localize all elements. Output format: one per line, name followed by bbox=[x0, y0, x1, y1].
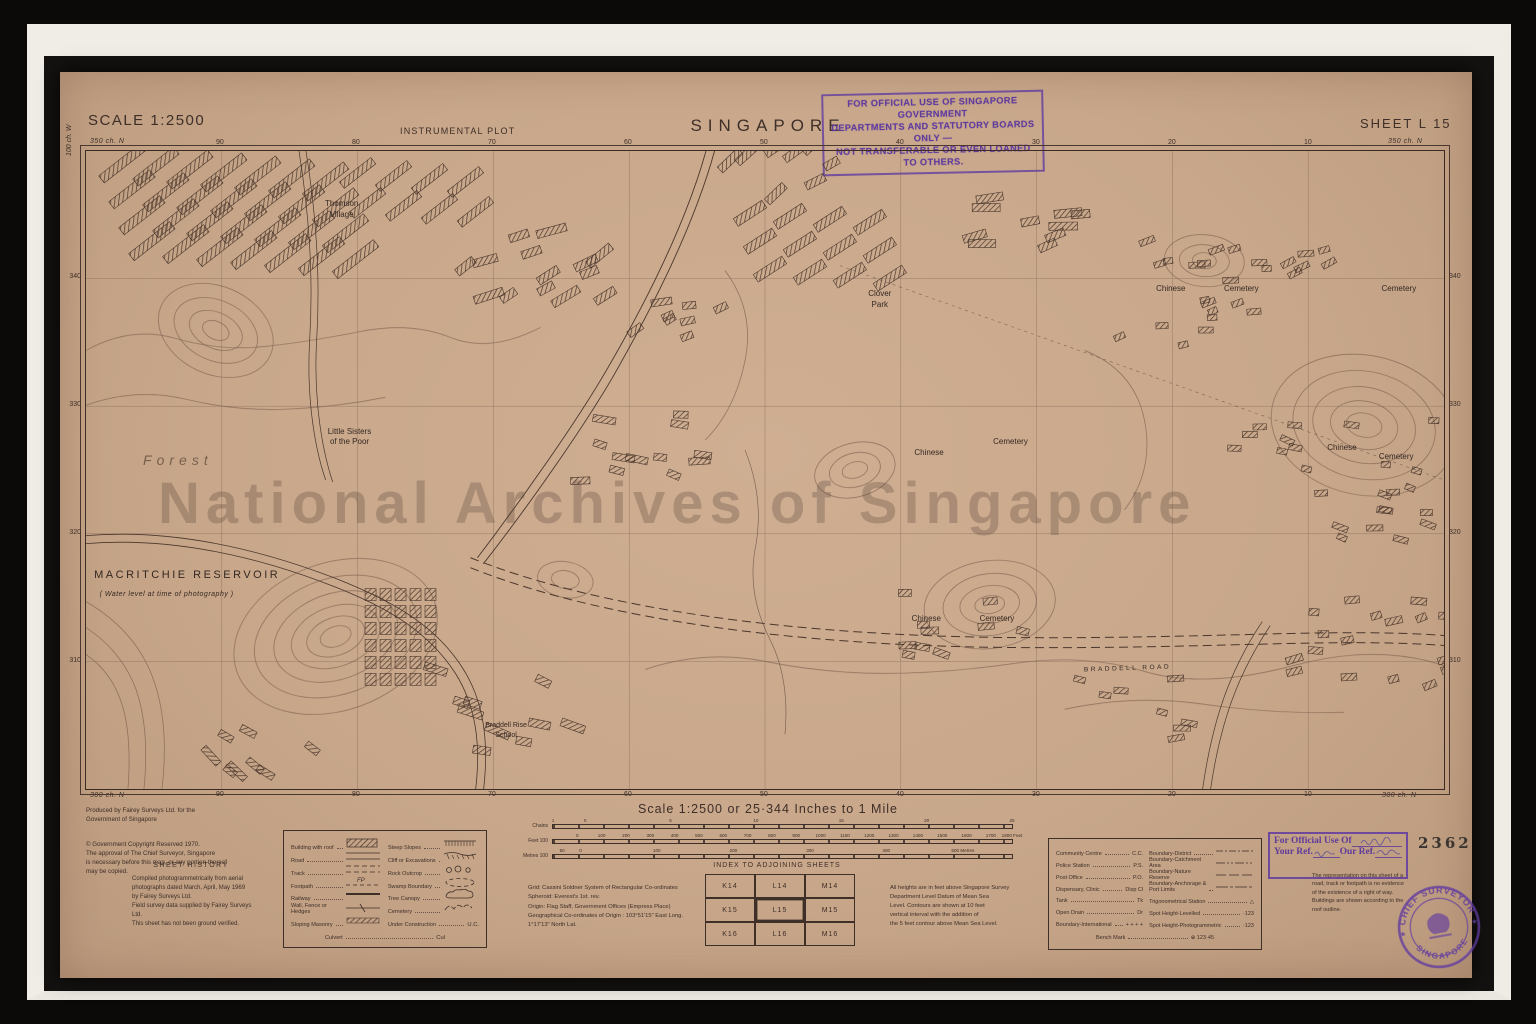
leader-dots bbox=[1225, 926, 1240, 927]
scale-label: SCALE 1:2500 bbox=[88, 112, 205, 129]
adjoining-sheet-cell: L16 bbox=[755, 922, 806, 947]
legend-row: Wall, Fence or Hedges bbox=[291, 902, 382, 915]
adjoining-sheets-title: INDEX TO ADJOINING SHEETS bbox=[692, 862, 862, 869]
leader-dots bbox=[424, 848, 440, 849]
legend-culvert-row: Culvert Cul bbox=[325, 929, 445, 941]
scale-bar-tick: 600 bbox=[719, 833, 727, 838]
map-label: Chinese bbox=[912, 614, 941, 625]
legend-row: Steep Slopes bbox=[388, 838, 479, 851]
legend-row: Building with roof bbox=[291, 838, 382, 851]
grid-number-right: 310 bbox=[1449, 657, 1461, 664]
legend-item-label: Sloping Masonry bbox=[291, 922, 333, 928]
symbol-legend-right: Steep SlopesCliff or ExcavationsRock Out… bbox=[388, 838, 479, 928]
scale-bar: 10510152025 bbox=[552, 824, 1013, 829]
legend-item-label: Track bbox=[291, 871, 305, 877]
legend-item-label: Footpath bbox=[291, 884, 313, 890]
scale-bar-tick: 20 bbox=[924, 818, 929, 823]
legend-row: Swamp Boundary bbox=[388, 877, 479, 890]
abbr-value: P.S. bbox=[1133, 863, 1143, 869]
scale-bar-tick: 0 bbox=[584, 818, 587, 823]
grid-number-top: 30 bbox=[1032, 139, 1040, 146]
abbr-row: Community CentreC.C. bbox=[1056, 845, 1143, 857]
abbr-row: Post OfficeP.O. bbox=[1056, 869, 1143, 881]
boundary-symbol bbox=[1216, 870, 1254, 881]
leader-dots bbox=[1087, 913, 1134, 914]
grid-number-bottom: 30 bbox=[1032, 791, 1040, 798]
map-label: Cemetery bbox=[1382, 284, 1417, 295]
scale-bar-tick: 1500 bbox=[937, 833, 947, 838]
map-label: Thomson Village bbox=[325, 199, 358, 221]
scale-bar-row: Chains10510152025 bbox=[508, 824, 1013, 829]
leader-dots bbox=[1105, 854, 1129, 855]
map-label: Clover Park bbox=[868, 289, 891, 311]
abbr-row: Police StationP.S. bbox=[1056, 857, 1143, 869]
svg-text:SINGAPORE: SINGAPORE bbox=[1413, 935, 1472, 965]
map-label: Chinese bbox=[1156, 284, 1185, 295]
legend-item-symbol bbox=[346, 864, 382, 877]
scale-bar-tick: 10 bbox=[753, 818, 758, 823]
scale-bar-tick: 50 bbox=[560, 848, 565, 853]
symbol-legend: Building with roofRoadTrackFootpathFPRai… bbox=[283, 830, 487, 948]
bench-mark-symbol: ⊕ 123·45 bbox=[1191, 935, 1214, 941]
map-labels: ForestThomson VillageLittle Sisters of t… bbox=[86, 151, 1444, 789]
legend-item-symbol bbox=[443, 838, 479, 851]
your-ref-label: Your Ref. bbox=[1274, 847, 1313, 858]
leader-dots bbox=[435, 887, 440, 888]
leader-dots bbox=[415, 912, 440, 913]
accession-number: 2362 bbox=[1418, 834, 1472, 852]
grid-number-bottom: 40 bbox=[896, 791, 904, 798]
scale-bar-tick: 0 bbox=[576, 833, 579, 838]
scale-bar: 500100200300400500 Metres bbox=[552, 854, 1013, 859]
boundary-row: Trigonometrical Station△ bbox=[1149, 893, 1254, 905]
legend-item-label: Rock Outcrop bbox=[388, 871, 422, 877]
legend-item-symbol bbox=[443, 902, 479, 915]
scale-bar-tick: 300 bbox=[806, 848, 814, 853]
abbr-label: Boundary-International bbox=[1056, 922, 1112, 928]
abbr-value: C.C. bbox=[1132, 851, 1143, 857]
legend-item-symbol bbox=[346, 915, 382, 928]
legend-item-symbol bbox=[443, 889, 479, 902]
legend-row: Rock Outcrop bbox=[388, 864, 479, 877]
grid-number-left: 340 bbox=[60, 273, 81, 280]
scale-bar-row: Feet 10001002003004005006007008009001000… bbox=[508, 839, 1013, 844]
scale-bar-tick: 1700 bbox=[986, 833, 996, 838]
adjoining-sheet-cell: M15 bbox=[805, 898, 856, 923]
abbr-label: Community Centre bbox=[1056, 851, 1102, 857]
legend-row: Tree Canopy bbox=[388, 890, 479, 903]
scale-bar-tick: 1000 bbox=[815, 833, 825, 838]
grid-number-bottom: 10 bbox=[1304, 791, 1312, 798]
adjoining-sheets-index: K14L14M14K15L15M15K16L16M16 bbox=[705, 874, 855, 946]
scale-bar-tick: 1600 bbox=[961, 833, 971, 838]
grid-number-top: 70 bbox=[488, 139, 496, 146]
abbr-row: Open DrainDr bbox=[1056, 904, 1143, 916]
map-label: Little Sisters of the Poor bbox=[328, 427, 372, 449]
boundary-symbol bbox=[1216, 882, 1254, 893]
legend-item-label: Road bbox=[291, 858, 304, 864]
adjoining-sheet-cell: K14 bbox=[705, 874, 756, 899]
abbr-label: Open Drain bbox=[1056, 910, 1084, 916]
grid-number-right: 320 bbox=[1449, 529, 1461, 536]
grid-number-bottom: 60 bbox=[624, 791, 632, 798]
scale-bar-tick: 25 bbox=[1009, 818, 1014, 823]
legend-item-label: Cemetery bbox=[388, 909, 412, 915]
bench-mark-label: Bench Mark bbox=[1096, 935, 1125, 941]
corner-label-west: 100 ch. W bbox=[66, 124, 73, 156]
abbr-label: Post Office bbox=[1056, 875, 1083, 881]
scale-bar-tick: 1 bbox=[552, 818, 555, 823]
grid-number-left: 310 bbox=[60, 657, 81, 664]
leader-dots bbox=[1103, 890, 1123, 891]
scale-bar-tick: 15 bbox=[839, 818, 844, 823]
sheet-history-text: Compiled photogrammetrically from aerial… bbox=[132, 875, 297, 929]
boundary-row: Spot Height-Levelled·123 bbox=[1149, 905, 1254, 917]
produced-by: Produced by Fairey Surveys Ltd. for the … bbox=[86, 807, 296, 825]
grid-number-top: 50 bbox=[760, 139, 768, 146]
leader-dots bbox=[346, 938, 434, 939]
legend-row: Railway bbox=[291, 890, 382, 903]
leader-dots bbox=[1208, 902, 1246, 903]
leader-dots bbox=[1203, 914, 1240, 915]
culvert-abbr: Cul bbox=[436, 935, 445, 941]
scale-bar-tick: 1200 bbox=[864, 833, 874, 838]
adjoining-sheet-cell: L14 bbox=[755, 874, 806, 899]
map-sheet: SCALE 1:2500 INSTRUMENTAL PLOT SINGAPORE… bbox=[60, 72, 1472, 978]
scale-bar-tick: 1800 Feet bbox=[1002, 833, 1023, 838]
scale-bar-tick: 200 bbox=[730, 848, 738, 853]
grid-number-bottom: 50 bbox=[760, 791, 768, 798]
legend-item-label: Swamp Boundary bbox=[388, 884, 432, 890]
legend-item-symbol bbox=[443, 877, 479, 890]
grid-number-top: 60 bbox=[624, 139, 632, 146]
boundary-label: Boundary-Nature Reserve bbox=[1149, 869, 1210, 881]
map-label: Cemetery bbox=[1379, 452, 1414, 463]
boundary-row: Spot Height-Photogrammetric·123 bbox=[1149, 917, 1254, 929]
abbr-row: TankTk bbox=[1056, 893, 1143, 905]
leader-dots bbox=[1086, 878, 1130, 879]
legend-item-symbol bbox=[346, 902, 382, 915]
adjoining-sheet-cell: K16 bbox=[705, 922, 756, 947]
boundary-symbol: △ bbox=[1250, 899, 1254, 905]
map-area: ForestThomson VillageLittle Sisters of t… bbox=[85, 150, 1445, 790]
scale-bar-tick: 400 bbox=[882, 848, 890, 853]
legend-item-symbol bbox=[346, 889, 382, 902]
culvert-label: Culvert bbox=[325, 935, 343, 941]
scale-bar-tick: 1100 bbox=[840, 833, 850, 838]
legend-row: Track bbox=[291, 864, 382, 877]
legend-item-label: Steep Slopes bbox=[388, 845, 421, 851]
scale-bar-tick: 400 bbox=[671, 833, 679, 838]
scale-bar-row: Metres 100500100200300400500 Metres bbox=[508, 854, 1013, 859]
handwriting bbox=[1313, 848, 1340, 858]
bench-mark-row: Bench Mark ⊕ 123·45 bbox=[1096, 930, 1214, 941]
photo-backdrop: SCALE 1:2500 INSTRUMENTAL PLOT SINGAPORE… bbox=[0, 0, 1536, 1024]
grid-number-right: 340 bbox=[1449, 273, 1461, 280]
legend-item-symbol bbox=[443, 851, 479, 864]
legend-item-label: Under Construction bbox=[388, 922, 436, 928]
corner-label-ne: 350 ch. N bbox=[1388, 138, 1422, 145]
scale-bar-tick: 200 bbox=[622, 833, 630, 838]
official-use-label: For Official Use Of bbox=[1274, 836, 1352, 847]
abbr-value: Tk bbox=[1137, 898, 1143, 904]
legend-row: Under ConstructionU.C. bbox=[388, 915, 479, 928]
scale-bar-tick: 500 bbox=[695, 833, 703, 838]
scale-bar-tick: 1400 bbox=[913, 833, 923, 838]
leader-dots bbox=[423, 899, 440, 900]
leader-dots bbox=[425, 874, 440, 875]
scale-bar-unit-label: Metres 100 bbox=[508, 854, 548, 859]
boundary-label: Spot Height-Levelled bbox=[1149, 911, 1200, 917]
grid-number-top: 80 bbox=[352, 139, 360, 146]
abbr-label: Police Station bbox=[1056, 863, 1090, 869]
grid-number-top: 40 bbox=[896, 139, 904, 146]
grid-number-bottom: 80 bbox=[352, 791, 360, 798]
handwriting bbox=[1375, 848, 1402, 858]
scale-bar-unit-label: Feet 100 bbox=[508, 839, 548, 844]
abbr-value: Disp Cl bbox=[1125, 887, 1143, 893]
leader-dots bbox=[1194, 854, 1213, 855]
leader-dots bbox=[316, 887, 343, 888]
legend-row: Cemetery bbox=[388, 902, 479, 915]
boundary-label: Boundary-Anchorage & Port Limits bbox=[1149, 881, 1206, 893]
grid-number-top: 90 bbox=[216, 139, 224, 146]
scale-bar-tick: 100 bbox=[598, 833, 606, 838]
map-label: Cemetery bbox=[1224, 284, 1259, 295]
legend-row: Sloping Masonry bbox=[291, 915, 382, 928]
grid-number-bottom: 90 bbox=[216, 791, 224, 798]
heights-note: All heights are in feet above Singapore … bbox=[890, 884, 1048, 929]
corner-label-se: 300 ch. N bbox=[1382, 792, 1416, 799]
leader-dots bbox=[439, 925, 464, 926]
grid-number-left: 320 bbox=[60, 529, 81, 536]
leader-dots bbox=[314, 899, 344, 900]
handwriting bbox=[1352, 837, 1402, 847]
svg-text:★: ★ bbox=[1399, 930, 1407, 939]
plot-type-label: INSTRUMENTAL PLOT bbox=[400, 126, 515, 136]
boundary-symbol bbox=[1216, 846, 1254, 857]
leader-dots bbox=[439, 861, 440, 862]
abbr-value: P.O. bbox=[1133, 875, 1143, 881]
map-label: Forest bbox=[143, 451, 213, 470]
grid-number-right: 330 bbox=[1449, 401, 1461, 408]
legend-item-symbol bbox=[443, 864, 479, 877]
legend-item-symbol bbox=[346, 851, 382, 864]
scale-bar-tick: 900 bbox=[792, 833, 800, 838]
abbr-row: Boundary-International+ + + + bbox=[1056, 916, 1143, 928]
map-label: Cemetery bbox=[993, 437, 1028, 448]
boundary-label: Boundary-Catchment Area bbox=[1149, 857, 1210, 869]
map-label: MACRITCHIE RESERVOIR bbox=[94, 568, 280, 583]
map-label: BRADDELL ROAD bbox=[1084, 664, 1171, 676]
abbr-label: Tank bbox=[1056, 898, 1068, 904]
scale-bar-title: Scale 1:2500 or 25·344 Inches to 1 Mile bbox=[638, 802, 898, 816]
stamp-crest bbox=[1426, 911, 1451, 935]
legend-item-label: Building with roof bbox=[291, 845, 334, 851]
legend-item-label: Railway bbox=[291, 896, 311, 902]
grid-number-bottom: 70 bbox=[488, 791, 496, 798]
legend-item-symbol: FP bbox=[346, 877, 382, 890]
boundary-symbol bbox=[1216, 858, 1254, 869]
legend-item-label: Wall, Fence or Hedges bbox=[291, 903, 340, 915]
leader-dots bbox=[337, 848, 344, 849]
abbr-value: Dr bbox=[1137, 910, 1143, 916]
boundary-row: Boundary-Catchment Area bbox=[1149, 857, 1254, 869]
boundary-label: Spot Height-Photogrammetric bbox=[1149, 923, 1221, 929]
abbreviation-legend: Community CentreC.C.Police StationP.S.Po… bbox=[1048, 838, 1262, 950]
adjoining-sheet-cell: M16 bbox=[805, 922, 856, 947]
map-label: ( Water level at time of photography ) bbox=[100, 590, 234, 599]
leader-dots bbox=[336, 925, 344, 926]
legend-item-label: Tree Canopy bbox=[388, 896, 420, 902]
abbr-row: Dispensary, ClinicDisp Cl bbox=[1056, 881, 1143, 893]
map-label: Cemetery bbox=[980, 614, 1015, 625]
leader-dots bbox=[1209, 890, 1213, 891]
legend-item-symbol bbox=[346, 838, 382, 851]
map-label: Chinese bbox=[914, 448, 943, 459]
grid-number-left: 330 bbox=[60, 401, 81, 408]
sheet-number: SHEET L 15 bbox=[1360, 116, 1452, 131]
abbreviation-legend-left: Community CentreC.C.Police StationP.S.Po… bbox=[1056, 845, 1143, 929]
sheet-history-title: SHEET HISTORY bbox=[86, 862, 296, 869]
scale-bar-tick: 0 bbox=[579, 848, 582, 853]
scale-bar-tick: 1300 bbox=[888, 833, 898, 838]
scale-bar-tick: 500 Metres bbox=[951, 848, 974, 853]
leader-dots bbox=[1128, 938, 1187, 939]
grid-number-top: 20 bbox=[1168, 139, 1176, 146]
scale-bar-tick: 700 bbox=[744, 833, 752, 838]
scale-bar-tick: 100 bbox=[653, 848, 661, 853]
grid-number-bottom: 20 bbox=[1168, 791, 1176, 798]
copyright-note: © Government Copyright Reserved 1970. Th… bbox=[86, 841, 296, 877]
legend-row: Cliff or Excavations bbox=[388, 851, 479, 864]
scale-bar-tick: 300 bbox=[646, 833, 654, 838]
leader-dots bbox=[1093, 866, 1131, 867]
scale-bar: 0100200300400500600700800900100011001200… bbox=[552, 839, 1013, 844]
legend-item-label: Cliff or Excavations bbox=[388, 858, 436, 864]
boundary-label: Trigonometrical Station bbox=[1149, 899, 1205, 905]
adjoining-sheet-cell: M14 bbox=[805, 874, 856, 899]
boundary-symbol: ·123 bbox=[1243, 923, 1254, 929]
legend-item-symbol: U.C. bbox=[467, 922, 479, 928]
svg-text:★: ★ bbox=[1471, 917, 1479, 926]
map-label: Braddell Rise School bbox=[485, 721, 527, 740]
scale-bar-tick: 800 bbox=[768, 833, 776, 838]
abbreviation-legend-right: Boundary-DistrictBoundary-Catchment Area… bbox=[1149, 845, 1254, 929]
symbol-legend-left: Building with roofRoadTrackFootpathFPRai… bbox=[291, 838, 382, 928]
abbr-value: + + + + bbox=[1126, 922, 1143, 928]
leader-dots bbox=[1115, 925, 1123, 926]
boundary-row: Boundary-Nature Reserve bbox=[1149, 869, 1254, 881]
abbr-label: Dispensary, Clinic bbox=[1056, 887, 1100, 893]
corner-label-nw: 350 ch. N bbox=[90, 138, 124, 145]
leader-dots bbox=[1071, 901, 1134, 902]
scale-bar-tick: 5 bbox=[669, 818, 672, 823]
leader-dots bbox=[307, 861, 343, 862]
chief-surveyor-stamp: CHIEF SURVEYOR SINGAPORE ★ ★ bbox=[1389, 877, 1489, 977]
boundary-symbol: ·123 bbox=[1243, 911, 1254, 917]
adjoining-sheet-cell: K15 bbox=[705, 898, 756, 923]
our-ref-label: Our Ref. bbox=[1340, 847, 1376, 858]
map-label: Chinese bbox=[1327, 443, 1356, 454]
scale-bar-unit-label: Chains bbox=[508, 824, 548, 829]
leader-dots bbox=[308, 874, 343, 875]
legend-row: Road bbox=[291, 851, 382, 864]
boundary-row: Boundary-Anchorage & Port Limits bbox=[1149, 881, 1254, 893]
legend-row: FootpathFP bbox=[291, 877, 382, 890]
svg-text:FP: FP bbox=[357, 878, 365, 884]
adjoining-sheet-cell: L15 bbox=[755, 898, 806, 923]
boundary-row: Boundary-District bbox=[1149, 845, 1254, 857]
projection-notes: Grid: Cassini Soldner System of Rectangu… bbox=[528, 884, 703, 930]
grid-number-top: 10 bbox=[1304, 139, 1312, 146]
